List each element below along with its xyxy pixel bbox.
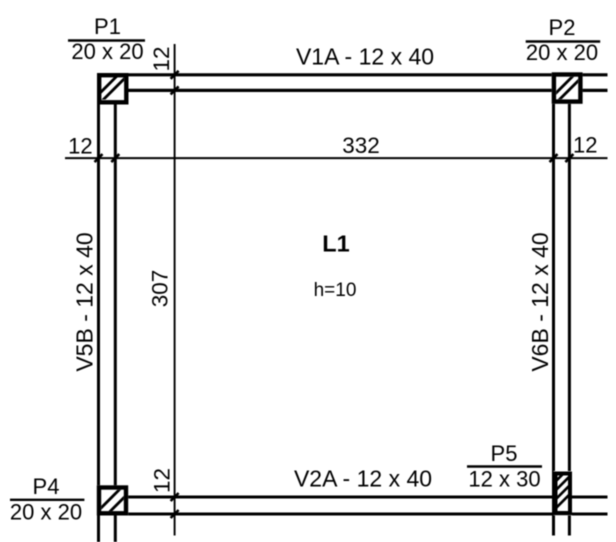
svg-text:P2: P2 — [549, 15, 576, 40]
svg-text:20 x 20: 20 x 20 — [71, 39, 143, 64]
svg-text:307: 307 — [148, 270, 173, 308]
svg-text:L1: L1 — [322, 231, 349, 257]
svg-text:12: 12 — [573, 133, 597, 158]
svg-text:12: 12 — [68, 134, 92, 159]
svg-text:12: 12 — [149, 46, 174, 71]
svg-text:20 x 20: 20 x 20 — [10, 500, 82, 525]
svg-text:332: 332 — [342, 133, 380, 158]
svg-text:12 x 30: 12 x 30 — [468, 467, 540, 492]
svg-text:V1A - 12 x 40: V1A - 12 x 40 — [296, 44, 434, 70]
svg-text:20 x 20: 20 x 20 — [526, 40, 598, 65]
svg-text:P1: P1 — [94, 14, 121, 39]
svg-text:V5B - 12 x 40: V5B - 12 x 40 — [72, 232, 98, 371]
svg-text:P5: P5 — [491, 441, 518, 466]
svg-text:h=10: h=10 — [314, 280, 357, 301]
svg-text:V2A - 12 x 40: V2A - 12 x 40 — [294, 466, 432, 492]
svg-text:12: 12 — [150, 468, 175, 493]
svg-text:V6B - 12 x 40: V6B - 12 x 40 — [527, 232, 553, 371]
svg-text:P4: P4 — [33, 474, 60, 499]
